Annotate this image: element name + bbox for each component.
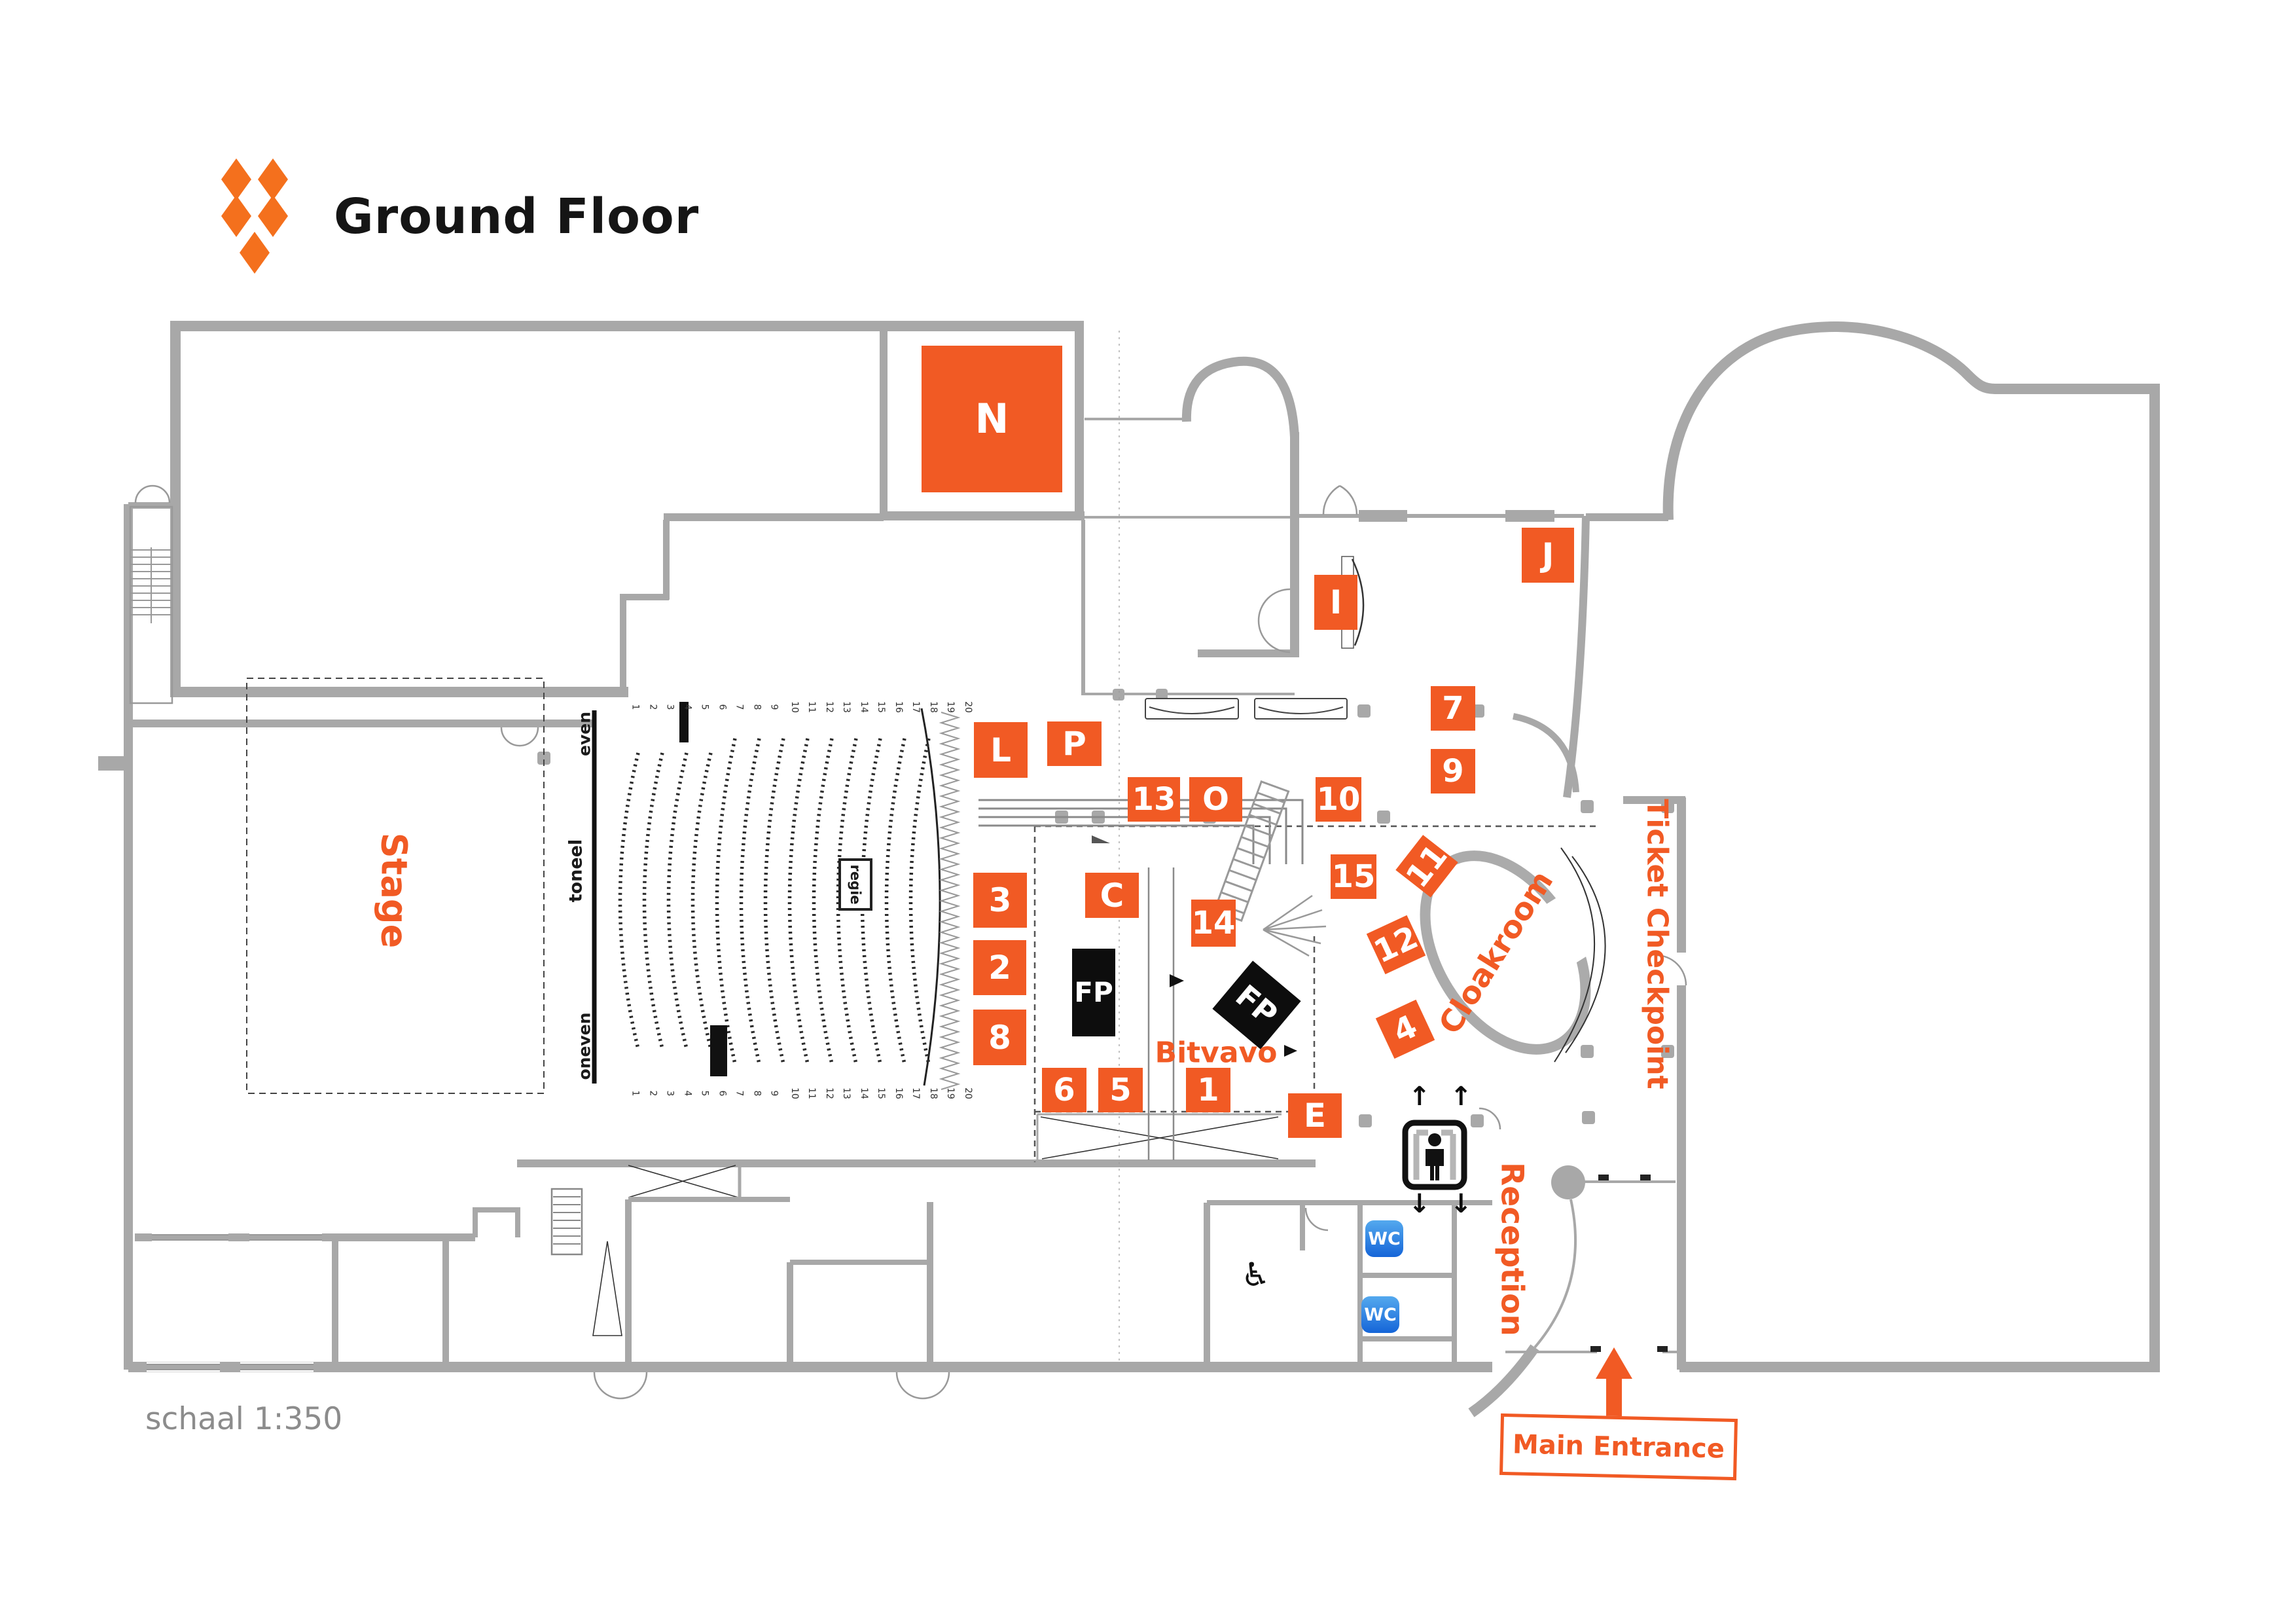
accessible-toilet-icon: ♿ [1241, 1256, 1270, 1294]
seat-row-number: 11 [806, 701, 817, 713]
map-marker-10: 10 [1316, 777, 1361, 822]
stair-fan [1263, 896, 1326, 956]
seat-row-number: 13 [841, 701, 852, 713]
map-marker-FP-left: FP [1072, 949, 1115, 1036]
seat-row-number: 16 [893, 1087, 903, 1099]
seat-row-number: 8 [751, 1091, 762, 1097]
area-label-regie: regie [848, 864, 863, 904]
seat-row-number: 2 [647, 1091, 658, 1097]
map-marker-5: 5 [1098, 1068, 1143, 1112]
seat-row-number: 7 [734, 704, 744, 710]
seat-row-number: 15 [876, 701, 886, 713]
map-marker-L: L [974, 722, 1028, 778]
walkway-arrow-2 [1284, 1045, 1297, 1057]
seat-row-number: 19 [945, 701, 956, 713]
map-marker-J: J [1522, 528, 1574, 583]
seat-row-number: 2 [647, 704, 658, 710]
seat-row-number: 20 [962, 701, 973, 713]
seat-row-number: 12 [823, 1087, 834, 1099]
elevator-up-arrows: ↑ ↑ [1408, 1082, 1477, 1112]
seat-row-number: 1 [630, 1091, 640, 1097]
scale-note: schaal 1:350 [145, 1401, 342, 1437]
seat-row-number: 5 [699, 1091, 709, 1097]
area-label-stage: Stage [374, 833, 415, 948]
map-marker-8: 8 [973, 1010, 1026, 1065]
map-marker-2: 2 [973, 940, 1026, 995]
vomitory-bottom [710, 1025, 727, 1076]
seat-row-number: 15 [876, 1087, 886, 1099]
auditorium-right-curve [922, 708, 940, 1085]
map-marker-3: 3 [973, 873, 1027, 928]
map-marker-6: 6 [1042, 1068, 1086, 1112]
area-label-reception: Reception [1494, 1162, 1530, 1336]
seat-row-number: 8 [751, 704, 762, 710]
seat-row-number: 10 [789, 701, 799, 713]
map-marker-N: N [922, 346, 1062, 492]
seating-rows [620, 739, 929, 1064]
seat-row-number: 4 [682, 1091, 692, 1097]
elevator-icon [1402, 1120, 1467, 1193]
map-marker-I: I [1314, 575, 1357, 630]
main-entrance-arrow [1596, 1347, 1632, 1417]
map-marker-7: 7 [1431, 686, 1475, 731]
main-entrance-label-box: Main Entrance [1499, 1413, 1738, 1480]
seat-row-number: 12 [823, 701, 834, 713]
seat-row-number: 16 [893, 701, 903, 713]
seat-row-number: 9 [768, 1091, 779, 1097]
area-label-oneven: oneven [575, 1013, 594, 1080]
seat-row-number: 3 [664, 1091, 675, 1097]
floor-plan-canvas: Ground Floor NJILP13O107915C3142811124FP… [0, 0, 2296, 1623]
map-marker-C: C [1085, 873, 1139, 918]
map-marker-14: 14 [1191, 900, 1236, 947]
seat-row-end-zigzag [941, 712, 958, 1089]
seat-row-number: 14 [858, 701, 869, 713]
seat-row-number: 6 [717, 1091, 727, 1097]
seat-row-number: 7 [734, 1091, 744, 1097]
seat-row-number: 3 [664, 704, 675, 710]
elevator-down-arrows: ↓ ↓ [1408, 1189, 1477, 1219]
ramp-triangle [593, 1241, 622, 1336]
seat-row-number: 18 [927, 1087, 938, 1099]
map-marker-9: 9 [1431, 749, 1475, 793]
area-label-bitvavo: Bitvavo [1155, 1036, 1278, 1070]
seat-row-number: 9 [768, 704, 779, 710]
door-marks [1590, 1175, 1668, 1352]
wc-lower-badge: WC [1361, 1296, 1399, 1333]
header: Ground Floor [221, 158, 699, 275]
seat-row-number: 13 [841, 1087, 852, 1099]
seat-row-number: 17 [910, 1087, 921, 1099]
wc-upper-badge: WC [1365, 1220, 1403, 1257]
map-marker-1: 1 [1186, 1068, 1230, 1112]
map-marker-P: P [1047, 721, 1102, 766]
seat-row-number: 11 [806, 1087, 817, 1099]
map-marker-13: 13 [1128, 777, 1180, 822]
seat-row-number: 6 [717, 704, 727, 710]
seat-row-number: 10 [789, 1087, 799, 1099]
map-marker-15: 15 [1331, 854, 1376, 899]
map-marker-E: E [1288, 1093, 1342, 1138]
seat-row-number: 19 [945, 1087, 956, 1099]
area-label-ticket-checkpoint: Ticket Checkpoint [1641, 799, 1674, 1089]
seat-row-number: 17 [910, 701, 921, 713]
seat-row-number: 18 [927, 701, 938, 713]
seat-row-number: 14 [858, 1087, 869, 1099]
seat-row-number: 20 [962, 1087, 973, 1099]
map-marker-O: O [1189, 777, 1242, 822]
seat-row-number: 1 [630, 704, 640, 710]
area-label-toneel: toneel [566, 839, 586, 903]
seat-row-number: 4 [682, 704, 692, 710]
step-wedge [1092, 835, 1110, 843]
page-title: Ground Floor [334, 189, 699, 245]
seat-row-number: 5 [699, 704, 709, 710]
walkway-arrow [1170, 974, 1184, 987]
main-entrance-label: Main Entrance [1513, 1429, 1725, 1464]
brand-logo-icon [221, 158, 289, 275]
area-label-even: even [575, 712, 594, 756]
bench [1145, 699, 1347, 719]
